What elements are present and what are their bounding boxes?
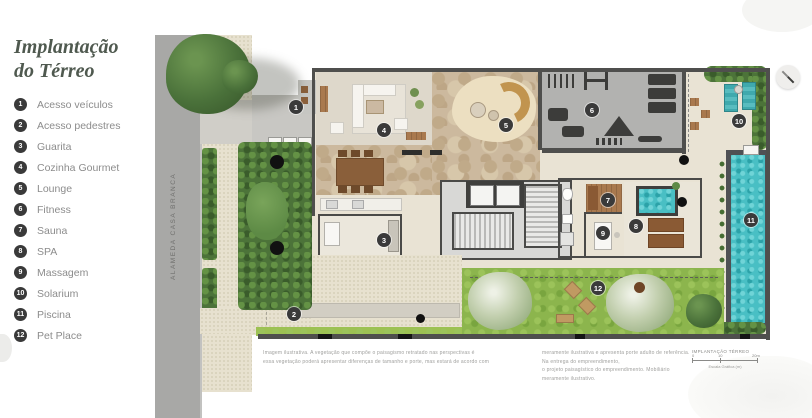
plan-marker-1: 1 [289, 100, 303, 114]
pool-water [731, 155, 765, 323]
dining-chair [351, 186, 360, 193]
wall [584, 212, 586, 258]
legend-badge-6: 6 [14, 203, 27, 216]
pet-tree [468, 272, 532, 330]
dining-chair [364, 186, 373, 193]
column [677, 197, 687, 207]
pet-bench [556, 314, 574, 323]
tree-trunk [270, 241, 284, 255]
legend-panel: Implantação do Térreo 1Acesso veículos 2… [14, 36, 156, 350]
page-title: Implantação do Térreo [14, 36, 156, 83]
disclaimer-right-line2: o projeto paisagístico do empreendimento… [542, 366, 692, 383]
scale-caption: Escala Gráfica (m) [692, 364, 758, 369]
elevator-car [496, 185, 520, 206]
dining-chair [351, 150, 360, 157]
cooktop [326, 200, 338, 209]
armchair [330, 122, 344, 134]
pool-ledge [743, 145, 759, 155]
wall [682, 70, 686, 154]
page-title-line2: do Térreo [14, 60, 156, 84]
plan-marker-9: 9 [596, 226, 610, 240]
disclaimer-right: meramente ilustrativa e apresenta porte … [542, 349, 692, 383]
perimeter-wall-bottom [258, 334, 770, 339]
legend-badge-12: 12 [14, 329, 27, 342]
pouf [410, 88, 419, 97]
treadmill [648, 88, 676, 99]
terrace-chair [301, 86, 308, 93]
legend-item-1: 1Acesso veículos [14, 98, 156, 111]
legend-badge-2: 2 [14, 119, 27, 132]
barbell [586, 79, 606, 82]
legend-item-5: 5Lounge [14, 182, 156, 195]
armchair [394, 118, 408, 130]
deck-mat [690, 98, 699, 106]
legend-list: 1Acesso veículos 2Acesso pedestres 3Guar… [14, 98, 156, 342]
plan-marker-6: 6 [585, 103, 599, 117]
scale-ruler: 0 10 20m [692, 356, 762, 364]
console-table [320, 86, 328, 112]
scale-tick-label: 0 [692, 353, 694, 358]
legend-item-4: 4Cozinha Gourmet [14, 161, 156, 174]
legend-item-12: 12Pet Place [14, 329, 156, 342]
gate [575, 334, 585, 339]
sun-lounger [742, 82, 756, 110]
plan-marker-8: 8 [629, 219, 643, 233]
stool [614, 232, 620, 238]
legend-item-3: 3Guarita [14, 140, 156, 153]
spa-lounger [648, 234, 684, 248]
scale-tick [720, 358, 721, 363]
scale-tick-label: 10 [718, 353, 722, 358]
corridor-line [688, 74, 689, 152]
sink [562, 214, 573, 224]
disclaimer-left: Imagem ilustrativa. A vegetação que comp… [263, 349, 538, 366]
pouf [415, 100, 424, 109]
page-title-line1: Implantação [14, 36, 156, 60]
column [416, 314, 425, 323]
legend-badge-10: 10 [14, 287, 27, 300]
plan-marker-12: 12 [591, 281, 605, 295]
plan-marker-11: 11 [744, 213, 758, 227]
perimeter-wall-right [766, 68, 770, 340]
plan-marker-7: 7 [601, 193, 615, 207]
tree-pit [634, 282, 645, 293]
legend-badge-9: 9 [14, 266, 27, 279]
legend-badge-7: 7 [14, 224, 27, 237]
legend-badge-4: 4 [14, 161, 27, 174]
dining-chair [364, 150, 373, 157]
dining-chair [338, 186, 347, 193]
sauna-bench [588, 186, 598, 210]
disclaimer-left-line2: essa vegetação poderá apresentar diferen… [263, 358, 538, 367]
rowing-machine [638, 136, 662, 142]
plan-marker-10: 10 [732, 114, 746, 128]
coffee-table [366, 100, 384, 114]
legend-item-6: 6Fitness [14, 203, 156, 216]
column [679, 155, 689, 165]
dining-chair [338, 150, 347, 157]
plant-pot [672, 182, 680, 190]
deck-mat [690, 122, 699, 130]
street-name-label: ALAMEDA CASA BRANCA [170, 160, 177, 280]
wall [542, 148, 684, 153]
toilet [562, 188, 573, 201]
legend-item-9: 9Massagem [14, 266, 156, 279]
plan-marker-2: 2 [287, 307, 301, 321]
wall [584, 212, 622, 214]
legend-badge-5: 5 [14, 182, 27, 195]
scale-tick-label: 20m [752, 353, 760, 358]
disclaimer-right-line1: meramente ilustrativa e apresenta porte … [542, 349, 692, 366]
tree-trunk [270, 155, 284, 169]
wall [538, 72, 542, 150]
entry-path [300, 303, 460, 318]
disclaimer-left-line1: Imagem ilustrativa. A vegetação que comp… [263, 349, 538, 358]
pet-bush [686, 294, 722, 328]
legend-item-8: 8SPA [14, 245, 156, 258]
perimeter-wall-top [312, 68, 770, 72]
deck-mat [701, 110, 710, 118]
sink [352, 200, 364, 209]
legend-badge-8: 8 [14, 245, 27, 258]
legend-item-11: 11Piscina [14, 308, 156, 321]
floorplan-page: Implantação do Térreo 1Acesso veículos 2… [0, 0, 812, 418]
weight-rack [548, 74, 574, 88]
garden-tree [246, 182, 288, 240]
wall [402, 150, 422, 155]
legend-badge-11: 11 [14, 308, 27, 321]
dumbbell-rack [596, 138, 622, 145]
shower [560, 232, 574, 246]
stairs [524, 184, 562, 248]
paper-blob [0, 334, 12, 362]
gate [318, 334, 332, 339]
spa-lounger [648, 218, 684, 232]
round-table [470, 102, 486, 118]
perimeter-wall-left [312, 68, 315, 216]
guard-bed [324, 222, 340, 246]
hedge-strip [202, 148, 217, 260]
legend-item-10: 10Solarium [14, 287, 156, 300]
north-compass-icon [776, 65, 800, 89]
treadmill [648, 102, 676, 113]
legend-badge-3: 3 [14, 140, 27, 153]
round-table [488, 110, 499, 121]
gym-machine [562, 126, 584, 137]
legend-badge-1: 1 [14, 98, 27, 111]
stairs [452, 212, 514, 250]
gate [398, 334, 412, 339]
plan-marker-4: 4 [377, 123, 391, 137]
scale-line [692, 360, 758, 361]
treadmill [648, 74, 676, 85]
compass-needle [782, 71, 795, 84]
plan-marker-3: 3 [377, 233, 391, 247]
gym-machine [548, 108, 568, 121]
wall [430, 150, 442, 155]
legend-item-7: 7Sauna [14, 224, 156, 237]
dining-table [336, 158, 384, 186]
scale-tick [692, 358, 693, 363]
paper-blob [742, 0, 812, 32]
scale-tick [757, 358, 758, 363]
elevator-car [470, 185, 494, 206]
sofa [352, 84, 364, 128]
legend-item-2: 2Acesso pedestres [14, 119, 156, 132]
plan-marker-5: 5 [499, 118, 513, 132]
street-tree-lobe [222, 60, 258, 94]
sideboard [406, 132, 426, 140]
side-table [734, 85, 743, 94]
plunge-pool [639, 189, 675, 213]
gate [740, 334, 750, 339]
scale-bar: IMPLANTAÇÃO TÉRREO 0 10 20m Escala Gráfi… [692, 349, 762, 369]
